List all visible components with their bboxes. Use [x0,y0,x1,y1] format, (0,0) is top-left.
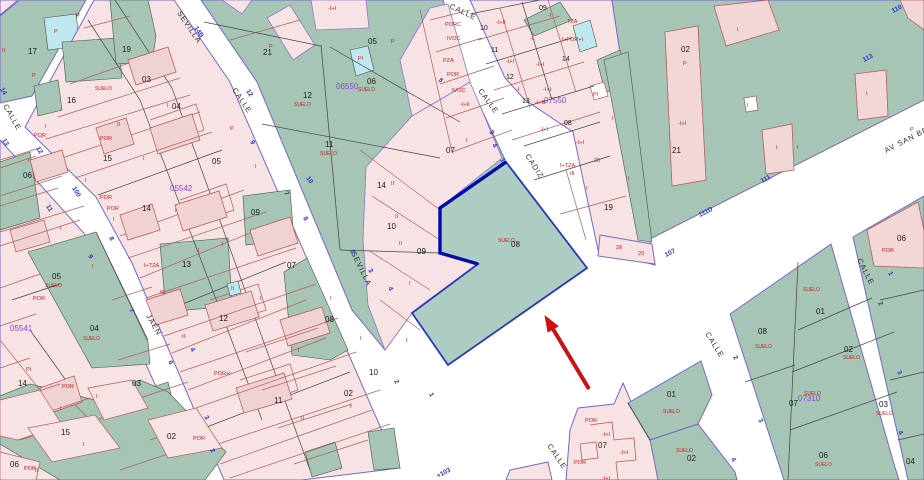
svg-text:-I+I: -I+I [540,127,549,133]
svg-text:08: 08 [564,120,572,127]
svg-text:SUELO: SUELO [45,283,62,289]
svg-text:13: 13 [182,260,191,269]
svg-text:02: 02 [344,389,353,398]
svg-text:II: II [395,214,399,220]
svg-text:06550: 06550 [336,82,359,91]
svg-text:12: 12 [506,74,514,81]
svg-text:11: 11 [491,47,498,54]
svg-text:04: 04 [906,457,915,466]
svg-text:-I: -I [548,13,552,19]
svg-text:19: 19 [122,45,131,54]
svg-text:I+TZA: I+TZA [144,263,159,269]
svg-text:08: 08 [325,315,334,324]
svg-text:14: 14 [562,56,570,63]
svg-text:-I+II: -I+II [496,20,506,26]
svg-text:-I: -I [530,36,534,42]
svg-text:P: P [76,13,80,19]
svg-text:III: III [570,171,575,177]
svg-text:P: P [683,61,687,67]
svg-text:PZA: PZA [443,58,454,64]
svg-text:POR: POR [585,418,597,424]
svg-text:14: 14 [142,204,151,213]
svg-text:10: 10 [369,368,378,377]
svg-text:06: 06 [10,460,19,469]
svg-text:POR: POR [193,436,205,442]
svg-text:02: 02 [844,345,853,354]
svg-text:10: 10 [480,25,488,32]
svg-text:SUELO: SUELO [83,336,100,342]
svg-text:SUELO: SUELO [498,238,515,244]
svg-text:01: 01 [816,307,825,316]
svg-text:-I+I: -I+I [602,476,611,480]
svg-text:II: II [231,286,235,292]
svg-text:P: P [54,29,58,35]
svg-text:SUELO: SUELO [663,409,680,415]
svg-text:POR: POR [107,206,119,212]
svg-text:05: 05 [212,157,221,166]
svg-text:-I+B: -I+B [535,100,546,106]
svg-text:02: 02 [167,432,176,441]
svg-text:-I: -I [516,87,520,93]
svg-text:PORC: PORC [445,22,461,28]
svg-text:05541: 05541 [10,324,33,333]
svg-text:10: 10 [387,222,396,231]
svg-text:09: 09 [539,5,547,12]
svg-text:POR: POR [882,248,894,254]
svg-text:II: II [391,181,395,187]
svg-text:II: II [399,241,403,247]
svg-text:POR+I: POR+I [214,371,231,377]
svg-text:P: P [391,39,395,45]
svg-text:SUELO: SUELO [804,391,821,397]
svg-text:P: P [269,44,273,50]
svg-text:II: II [2,48,6,54]
svg-text:II: II [35,468,39,474]
svg-text:28: 28 [616,245,622,251]
svg-text:SUELO: SUELO [803,287,820,293]
svg-text:SUELO: SUELO [843,355,860,361]
svg-text:14: 14 [18,379,27,388]
svg-text:PI: PI [358,56,364,62]
svg-text:29: 29 [638,251,644,257]
svg-text:-I+I: -I+I [678,121,687,127]
svg-text:03: 03 [142,75,151,84]
svg-text:07550: 07550 [544,96,567,105]
svg-text:06: 06 [367,77,376,86]
svg-text:IVOC: IVOC [447,36,460,42]
svg-text:POR: POR [574,460,586,466]
svg-text:SUELO: SUELO [676,448,693,454]
svg-text:05: 05 [368,37,377,46]
svg-text:12: 12 [303,91,312,100]
svg-text:POR: POR [447,72,459,78]
svg-text:12: 12 [219,314,228,323]
svg-text:06: 06 [23,171,32,180]
svg-text:-I+I: -I+I [602,432,611,438]
svg-text:-I+I: -I+I [328,6,337,12]
svg-text:-I+II: -I+II [460,102,470,108]
svg-text:III: III [160,290,165,296]
svg-text:15: 15 [61,428,70,437]
svg-text:21: 21 [672,146,681,155]
svg-text:06: 06 [819,451,828,460]
svg-text:03: 03 [132,379,141,388]
svg-text:14: 14 [377,181,386,190]
svg-text:05: 05 [52,272,61,281]
svg-text:16: 16 [67,96,76,105]
svg-text:07: 07 [446,146,455,155]
svg-text:15: 15 [103,154,112,163]
svg-text:01: 01 [667,390,676,399]
svg-text:07: 07 [598,441,607,450]
svg-text:I+TZA: I+TZA [560,163,575,169]
svg-text:TZA: TZA [567,19,578,25]
svg-text:07: 07 [287,261,296,270]
svg-text:05542: 05542 [170,184,193,193]
svg-text:P: P [230,126,234,132]
svg-text:POR: POR [100,136,112,142]
svg-text:-I+I: -I+I [506,59,515,65]
svg-text:SUELO: SUELO [358,87,375,93]
svg-text:PI: PI [593,92,599,98]
svg-text:PI: PI [26,367,32,373]
svg-text:SUELO: SUELO [95,86,112,92]
svg-text:11: 11 [274,396,283,405]
svg-text:SUELO: SUELO [320,151,337,157]
svg-text:13: 13 [522,98,530,105]
svg-text:09: 09 [417,247,426,256]
svg-text:-I+I: -I+I [543,87,552,93]
svg-text:POR: POR [34,133,46,139]
svg-text:IVOC: IVOC [452,88,465,94]
svg-text:-I+I: -I+I [576,140,585,146]
svg-text:POR: POR [62,384,74,390]
svg-text:19: 19 [604,203,613,212]
svg-text:POR: POR [33,296,45,302]
svg-text:28: 28 [594,158,600,164]
svg-text:SUELO: SUELO [815,462,832,468]
svg-text:06: 06 [897,234,906,243]
svg-text:II: II [182,334,186,340]
svg-text:02: 02 [687,454,696,463]
svg-text:POR: POR [100,195,112,201]
svg-text:II: II [301,416,305,422]
svg-text:-I+I: -I+I [536,62,545,68]
svg-text:17: 17 [28,47,37,56]
svg-text:03: 03 [879,400,888,409]
svg-text:P: P [32,73,36,79]
svg-text:04: 04 [172,102,181,111]
svg-text:09: 09 [251,208,260,217]
svg-text:04: 04 [90,324,99,333]
svg-text:SUELO: SUELO [876,411,893,417]
svg-text:II: II [117,122,121,128]
svg-text:08: 08 [758,327,767,336]
svg-text:SUELO: SUELO [294,102,311,108]
svg-text:02: 02 [681,45,690,54]
svg-text:SUELO: SUELO [755,344,772,350]
svg-text:-I+I: -I+I [620,450,629,456]
svg-text:I+FOR+I: I+FOR+I [562,37,584,43]
svg-text:11: 11 [325,140,334,149]
